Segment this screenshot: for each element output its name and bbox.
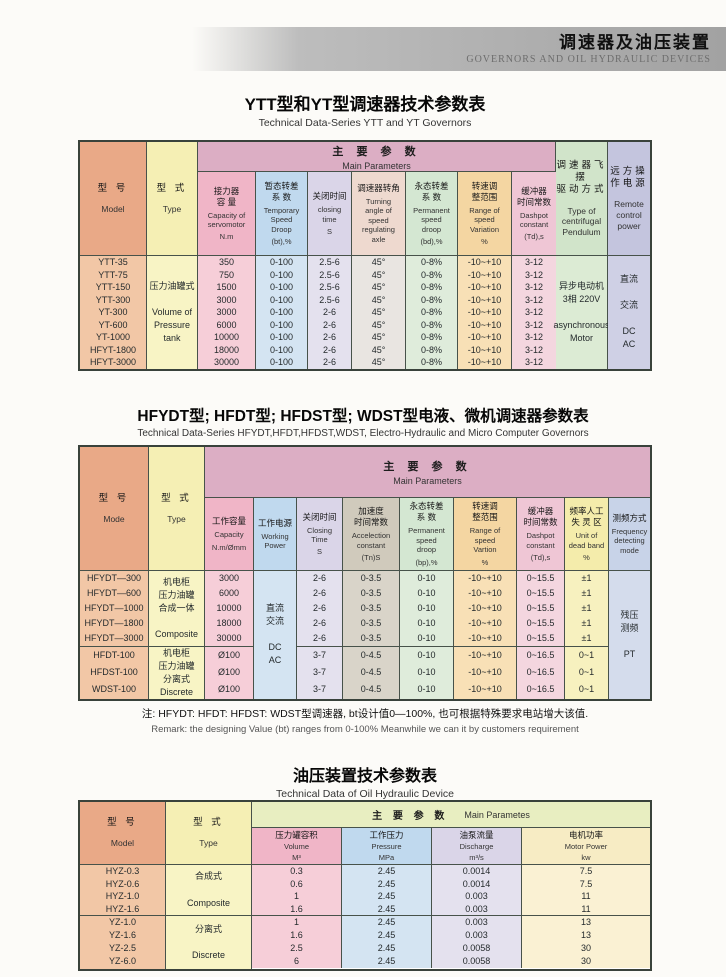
table-cell: 3-7 <box>297 664 342 681</box>
table3-title: 油压装置技术参数表 Technical Data of Oil Hydrauli… <box>78 762 652 800</box>
header-en: Volume <box>284 842 309 851</box>
table-cell: 0-100 <box>256 344 307 357</box>
remark-cn: 注: HFYDT: HFDT: HFDST: WDST型调速器, bt设计值0—… <box>58 706 672 721</box>
table-cell: HFYT-1800 <box>80 344 146 357</box>
table-cell: YTT-75 <box>80 269 146 282</box>
t3-col-pressure: 工作压力 Pressure MPa 2.452.452.452.45 2.452… <box>342 828 432 968</box>
header-en: Turning angle of speed regulating axle <box>362 197 395 244</box>
t2-col-working-power: 工作电源 Working Power 直流 交流 DC AC <box>254 498 297 699</box>
table-cell: HFDT-100 <box>80 647 148 664</box>
t2-capacity-values-g1: 30006000100001800030000 <box>205 571 253 646</box>
header-unit: kw <box>581 853 590 862</box>
table-cell: 0-8% <box>406 294 457 307</box>
table-cell: 30000 <box>198 356 255 369</box>
t3-subcolumns: 压力罐容积 Volume M³ 0.30.611.6 11.62.56 工作压力… <box>252 828 650 968</box>
header-cn: 测频方式 <box>612 513 646 524</box>
table3-oil-hydraulic-device: 型 号 Model HYZ-0.3HYZ-0.6HYZ-1.0HYZ-1.6 Y… <box>78 800 652 971</box>
catalog-page: 调速器及油压装置 GOVERNORS AND OIL HYDRAULIC DEV… <box>0 0 726 977</box>
t2-tn-values-g2: 0-4.50-4.50-4.5 <box>343 646 399 698</box>
table-cell: 3-12 <box>512 319 556 332</box>
table-cell: 2-6 <box>297 571 342 586</box>
table-cell: 0~1 <box>565 664 608 681</box>
table-cell: 45° <box>352 344 405 357</box>
t3-motor-values-g2: 13133030 <box>522 915 650 968</box>
t3-pressure-values-g1: 2.452.452.452.45 <box>342 865 431 915</box>
table-cell: 0-10 <box>400 664 453 681</box>
table-cell: Ø100 <box>205 681 253 698</box>
table-cell: 0~16.5 <box>517 681 564 698</box>
t3-volume-values-g2: 11.62.56 <box>252 915 341 968</box>
table-cell: 2-6 <box>308 344 351 357</box>
t1-col-temporary-droop: 暂态转差 系 数 Temporary Speed Droop (bt),% 0-… <box>256 172 308 369</box>
t3-discharge-values-g2: 0.0030.0030.00580.0058 <box>432 915 521 968</box>
t2-col-permanent-droop: 永态转差 系 数 Permanent speed droop (bp),% 0-… <box>400 498 454 699</box>
table-cell: 45° <box>352 331 405 344</box>
header-cn: 接力器 容 量 <box>214 186 240 208</box>
t3-motor-header: 电机功率 Motor Power kw <box>522 828 650 865</box>
table-cell: ±1 <box>565 616 608 631</box>
header-en: Accelection constant <box>352 531 390 550</box>
table-cell: 13 <box>522 916 650 929</box>
header-en: Type <box>163 204 181 215</box>
table-cell: 0-10 <box>400 647 453 664</box>
table-cell: HFYDT—600 <box>80 586 148 601</box>
table-cell: 0-10 <box>400 616 453 631</box>
table-cell: 1.6 <box>252 929 341 942</box>
table-cell: HFYT-3000 <box>80 356 146 369</box>
t1-main-parameters-group: 主 要 参 数 Main Parameters 接力器 容 量 Capacity… <box>198 142 556 369</box>
table-cell: -10~+10 <box>454 616 516 631</box>
header-en: Discharge <box>460 842 494 851</box>
table-cell: 2.5-6 <box>308 281 351 294</box>
table-cell: 0-8% <box>406 269 457 282</box>
t1-col-turning-angle: 调速器转角 Turning angle of speed regulating … <box>352 172 406 369</box>
table-cell: 0-10 <box>400 586 453 601</box>
t3-col-type: 型 式 Type 合成式 Composite 分离式 Discrete <box>166 802 252 969</box>
table-cell: 0-3.5 <box>343 601 399 616</box>
table1-title-en: Technical Data-Series YTT and YT Governo… <box>78 117 652 129</box>
t3-model-values-g1: HYZ-0.3HYZ-0.6HYZ-1.0HYZ-1.6 <box>80 865 165 915</box>
table-cell: 0.6 <box>252 878 341 891</box>
table-cell: 0-8% <box>406 319 457 332</box>
table-cell: -10~+10 <box>458 344 511 357</box>
table1-governors-ytt-yt: 型 号 Model YTT-35YTT-75YTT-150YTT-300YT-3… <box>78 140 652 371</box>
header-cn: 工作电源 <box>258 518 292 529</box>
table-cell: HYZ-1.0 <box>80 890 165 903</box>
table-cell: 0-4.5 <box>343 647 399 664</box>
header-cn: 型 号 <box>99 493 130 505</box>
table-cell: 750 <box>198 269 255 282</box>
t3-volume-values-g1: 0.30.611.6 <box>252 865 341 915</box>
t3-model-values-g2: YZ-1.0YZ-1.6YZ-2.5YZ-6.0 <box>80 915 165 968</box>
header-en: Type <box>167 514 185 525</box>
table-cell: 0-100 <box>256 356 307 369</box>
header-en: Dashpot constant <box>520 211 548 230</box>
table-cell: 2-6 <box>308 306 351 319</box>
header-en: Capacity <box>214 530 243 539</box>
table-cell: -10~+10 <box>454 571 516 586</box>
table-cell: 3-12 <box>512 306 556 319</box>
table-cell: 0.0014 <box>432 865 521 878</box>
t2-deadband-header: 频率人工 失 灵 区 Unit of dead band % <box>565 498 608 571</box>
table-cell: 0-8% <box>406 256 457 269</box>
table-cell: 10000 <box>205 601 253 616</box>
t2-main-parameters-group: 主 要 参 数 Main Parameters 工作容量 Capacity N.… <box>205 447 650 699</box>
table-cell: 0-100 <box>256 269 307 282</box>
table-cell: 0.003 <box>432 916 521 929</box>
header-unit: MPa <box>379 853 394 862</box>
t1-col-speed-range: 转速调 整范围 Range of speed Variation % -10~+… <box>458 172 512 369</box>
t3-main-parameters-band: 主 要 参 数 Main Parametes <box>252 802 650 828</box>
header-cn: 型 号 <box>98 183 129 195</box>
table2-title-en: Technical Data-Series HFYDT,HFDT,HFDST,W… <box>38 428 688 439</box>
table-cell: -10~+10 <box>458 319 511 332</box>
table-cell: 18000 <box>205 616 253 631</box>
table-cell: Ø100 <box>205 647 253 664</box>
table-cell: YZ-2.5 <box>80 942 165 955</box>
header-en: Permanent speed droop <box>408 526 445 554</box>
header-en: Mode <box>103 514 124 525</box>
table-cell: -10~+10 <box>458 256 511 269</box>
header-en: Type of centrifugal Pendulum <box>562 206 601 238</box>
table-cell: YT-300 <box>80 306 146 319</box>
t1-capacity-header: 接力器 容 量 Capacity of servomotor N.m <box>198 172 255 256</box>
table-cell: 1 <box>252 890 341 903</box>
header-cn: 远方操 作电源 <box>610 166 648 191</box>
table-cell: 3-12 <box>512 344 556 357</box>
t2-model-values-g1: HFYDT—300HFYDT—600HFYDT—1000HFYDT—1800HF… <box>80 571 148 646</box>
table-cell: 3-12 <box>512 356 556 369</box>
t3-type-discrete-cell: 分离式 Discrete <box>166 915 251 969</box>
t1-remote-header: 远方操 作电源 Remote control power <box>608 142 650 256</box>
t2-td-values-g2: 0~16.50~16.50~16.5 <box>517 646 564 698</box>
table-cell: 18000 <box>198 344 255 357</box>
table-cell: 45° <box>352 269 405 282</box>
table-cell: 7.5 <box>522 878 650 891</box>
t2-deadband-values-g2: 0~10~10~1 <box>565 646 608 698</box>
t1-pendulum-merged-cell: 异步电动机 3相 220V asynchronous Motor <box>556 256 607 369</box>
table-cell: HYZ-1.6 <box>80 903 165 916</box>
table-cell: 3000 <box>198 294 255 307</box>
t3-pressure-values-g2: 2.452.452.452.45 <box>342 915 431 968</box>
t1-capacity-values: 3507501500300030006000100001800030000 <box>198 256 255 369</box>
table-cell: 2.45 <box>342 929 431 942</box>
header-cn: 转速调 整范围 <box>472 181 498 203</box>
header-cn: 工作压力 <box>369 830 403 841</box>
header-unit: S <box>327 227 332 236</box>
table-cell: 3000 <box>205 571 253 586</box>
table-cell: -10~+10 <box>454 664 516 681</box>
t2-col-type: 型 式 Type 机电柜 压力油罐 合成一体 Composite 机电柜 压力油… <box>149 447 205 699</box>
table-cell: 2.45 <box>342 903 431 916</box>
header-unit: N.m/Ømm <box>212 543 246 552</box>
table-cell: 0-100 <box>256 256 307 269</box>
table-cell: 0-8% <box>406 331 457 344</box>
t2-closing-values-g2: 3-73-73-7 <box>297 646 342 698</box>
header-unit: (bt),% <box>271 237 291 246</box>
t1-angle-values: 45°45°45°45°45°45°45°45°45° <box>352 256 405 369</box>
t3-col-volume: 压力罐容积 Volume M³ 0.30.611.6 11.62.56 <box>252 828 342 968</box>
table-cell: HFYDT—3000 <box>80 631 148 646</box>
table-cell: 0-100 <box>256 294 307 307</box>
table-cell: 0-8% <box>406 281 457 294</box>
t1-td-header: 缓冲器 时间常数 Dashpot constant (Td),s <box>512 172 556 256</box>
header-unit: (bp),% <box>415 558 437 567</box>
header-cn: 永态转差 系 数 <box>409 501 443 523</box>
table-cell: 2.45 <box>342 890 431 903</box>
header-unit: N.m <box>220 232 234 241</box>
table-cell: YZ-1.6 <box>80 929 165 942</box>
table-cell: 2.5 <box>252 942 341 955</box>
header-cn: 缓冲器 时间常数 <box>523 506 557 528</box>
table-cell: 45° <box>352 319 405 332</box>
t3-volume-header: 压力罐容积 Volume M³ <box>252 828 341 865</box>
header-en: Range of speed Vartion <box>470 526 500 554</box>
table-cell: HFYDT—300 <box>80 571 148 586</box>
table-cell: -10~+10 <box>458 356 511 369</box>
header-cn: 压力罐容积 <box>275 830 318 841</box>
header-en: Dashpot constant <box>526 531 554 550</box>
header-en: Model <box>101 204 124 215</box>
table-cell: 30000 <box>205 631 253 646</box>
t2-type-discrete-cell: 机电柜 压力油罐 分离式 Discrete <box>149 646 204 699</box>
table-cell: 1.6 <box>252 903 341 916</box>
table-cell: -10~+10 <box>454 586 516 601</box>
band-cn: 主 要 参 数 <box>383 458 471 474</box>
t2-model-header: 型 号 Mode <box>80 447 148 571</box>
t1-col-model: 型 号 Model YTT-35YTT-75YTT-150YTT-300YT-3… <box>80 142 147 369</box>
t1-col-closing-time: 关闭时间 closing time S 2.5-62.5-62.5-62.5-6… <box>308 172 352 369</box>
header-en: Temporary Speed Droop <box>264 206 299 234</box>
table-cell: YTT-300 <box>80 294 146 307</box>
table-cell: 350 <box>198 256 255 269</box>
table-cell: 0-10 <box>400 601 453 616</box>
t1-col-dashpot: 缓冲器 时间常数 Dashpot constant (Td),s 3-123-1… <box>512 172 556 369</box>
table-cell: 0~1 <box>565 647 608 664</box>
table-cell: -10~+10 <box>458 294 511 307</box>
header-unit: S <box>317 547 322 556</box>
table-cell: 30 <box>522 955 650 968</box>
table-cell: 0.3 <box>252 865 341 878</box>
remark-en: Remark: the designing Value (bt) ranges … <box>58 724 672 735</box>
t2-capacity-values-g2: Ø100Ø100Ø100 <box>205 646 253 698</box>
t2-mode-header: 测频方式 Frequency detecting mode <box>609 498 650 571</box>
table-cell: ±1 <box>565 631 608 646</box>
t2-main-parameters-band: 主 要 参 数 Main Parameters <box>205 447 650 498</box>
table-cell: 2.45 <box>342 878 431 891</box>
t2-type-header: 型 式 Type <box>149 447 204 571</box>
table-cell: 0~15.5 <box>517 631 564 646</box>
band-en: Main Parametes <box>464 810 530 820</box>
t2-closing-header: 关闭时间 Closing Time S <box>297 498 342 571</box>
header-cn: 加速度 时间常数 <box>354 506 388 528</box>
header-en: Remote control power <box>614 199 644 231</box>
header-unit: M³ <box>292 853 301 862</box>
table-cell: 0.0058 <box>432 942 521 955</box>
t3-col-discharge: 油泵流量 Discharge m³/s 0.00140.00140.0030.0… <box>432 828 522 968</box>
header-unit: % <box>481 237 488 246</box>
table-cell: 3000 <box>198 306 255 319</box>
t2-bp-values-g1: 0-100-100-100-100-10 <box>400 571 453 646</box>
t2-power-header: 工作电源 Working Power <box>254 498 296 571</box>
header-cn: 永态转差 系 数 <box>414 181 448 203</box>
header-unit: m³/s <box>469 853 484 862</box>
t2-col-model: 型 号 Mode HFYDT—300HFYDT—600HFYDT—1000HFY… <box>80 447 149 699</box>
header-en: Motor Power <box>565 842 608 851</box>
table-cell: 3-12 <box>512 269 556 282</box>
header-en: Closing Time <box>307 526 332 545</box>
table-cell: 2.45 <box>342 916 431 929</box>
table-cell: 2-6 <box>297 616 342 631</box>
t1-col-remote-power: 远方操 作电源 Remote control power 直流 交流 DC AC <box>608 142 650 369</box>
header-en: closing time <box>318 205 341 224</box>
t2-mode-merged-cell: 残压 测频 PT <box>609 571 650 699</box>
table-cell: 2-6 <box>297 586 342 601</box>
header-en: Permanent speed droop <box>413 206 450 234</box>
t1-bd-values: 0-8%0-8%0-8%0-8%0-8%0-8%0-8%0-8%0-8% <box>406 256 457 369</box>
table-cell: 2-6 <box>297 631 342 646</box>
header-unit: (Tn)S <box>362 553 381 562</box>
t2-bp-values-g2: 0-100-100-10 <box>400 646 453 698</box>
header-unit: % <box>482 558 489 567</box>
table-cell: 6 <box>252 955 341 968</box>
t1-col-capacity: 接力器 容 量 Capacity of servomotor N.m 35075… <box>198 172 256 369</box>
table-cell: 0.0014 <box>432 878 521 891</box>
table2-title: HFYDT型; HFDT型; HFDST型; WDST型电液、微机调速器参数表 … <box>38 404 688 439</box>
table-cell: Ø100 <box>205 664 253 681</box>
table-cell: 30 <box>522 942 650 955</box>
t3-discharge-header: 油泵流量 Discharge m³/s <box>432 828 521 865</box>
t2-power-merged-cell: 直流 交流 DC AC <box>254 571 296 699</box>
table-cell: YT-600 <box>80 319 146 332</box>
header-cn: 调速器飞摆 驱动方式 <box>556 160 607 197</box>
table-cell: 2.45 <box>342 942 431 955</box>
t2-tn-header: 加速度 时间常数 Accelection constant (Tn)S <box>343 498 399 571</box>
t2-col-detecting-mode: 测频方式 Frequency detecting mode 残压 测频 PT <box>609 498 650 699</box>
t2-subcolumns: 工作容量 Capacity N.m/Ømm 300060001000018000… <box>205 498 650 699</box>
header-cn: 型 式 <box>193 817 224 829</box>
table-cell: HYZ-0.6 <box>80 878 165 891</box>
table1-title-cn: YTT型和YT型调速器技术参数表 <box>78 90 652 115</box>
t3-discharge-values-g1: 0.00140.00140.0030.003 <box>432 865 521 915</box>
band-en: Main Parameters <box>393 476 462 486</box>
table-cell: 0-100 <box>256 281 307 294</box>
table-cell: 0.0058 <box>432 955 521 968</box>
table-cell: ±1 <box>565 571 608 586</box>
page-header-banner: 调速器及油压装置 GOVERNORS AND OIL HYDRAULIC DEV… <box>192 27 726 71</box>
table-cell: 2-6 <box>308 319 351 332</box>
t1-td-values: 3-123-123-123-123-123-123-123-123-12 <box>512 256 556 369</box>
header-cn: 型 号 <box>107 817 138 829</box>
table-cell: 0-10 <box>400 571 453 586</box>
table-cell: 0-10 <box>400 681 453 698</box>
t1-range-header: 转速调 整范围 Range of speed Variation % <box>458 172 511 256</box>
header-en: Working Power <box>261 532 288 551</box>
header-cn: 暂态转差 系 数 <box>264 181 298 203</box>
table-cell: ±1 <box>565 586 608 601</box>
table-cell: 0-8% <box>406 356 457 369</box>
header-en: Pressure <box>371 842 401 851</box>
t2-col-capacity: 工作容量 Capacity N.m/Ømm 300060001000018000… <box>205 498 254 699</box>
page-title-cn: 调速器及油压装置 <box>559 33 711 53</box>
header-unit: (Td),s <box>531 553 551 562</box>
header-unit: (bd),% <box>420 237 442 246</box>
t3-motor-values-g1: 7.57.51111 <box>522 865 650 915</box>
t2-col-acceleration-constant: 加速度 时间常数 Accelection constant (Tn)S 0-3.… <box>343 498 400 699</box>
header-cn: 工作容量 <box>212 516 246 527</box>
t1-bt-header: 暂态转差 系 数 Temporary Speed Droop (bt),% <box>256 172 307 256</box>
header-cn: 型 式 <box>157 183 188 195</box>
table-cell: 45° <box>352 256 405 269</box>
table-cell: 7.5 <box>522 865 650 878</box>
table-cell: 3-12 <box>512 294 556 307</box>
t1-model-values: YTT-35YTT-75YTT-150YTT-300YT-300YT-600YT… <box>80 256 146 369</box>
header-cn: 调速器转角 <box>357 183 400 194</box>
t1-col-permanent-droop: 永态转差 系 数 Permanent speed droop (bd),% 0-… <box>406 172 458 369</box>
table-cell: 11 <box>522 903 650 916</box>
table-cell: 3-12 <box>512 281 556 294</box>
table-cell: 3-7 <box>297 647 342 664</box>
header-cn: 关闭时间 <box>302 512 336 523</box>
table-cell: YTT-35 <box>80 256 146 269</box>
table-cell: 0-100 <box>256 306 307 319</box>
table-cell: 45° <box>352 294 405 307</box>
table-cell: 0-8% <box>406 306 457 319</box>
header-en: Type <box>199 838 217 849</box>
t3-main-parameters-group: 主 要 参 数 Main Parametes 压力罐容积 Volume M³ 0… <box>252 802 650 969</box>
t2-col-dead-band: 频率人工 失 灵 区 Unit of dead band % ±1±1±1±1±… <box>565 498 609 699</box>
header-cn: 转速调 整范围 <box>472 501 498 523</box>
table-cell: 2-6 <box>308 331 351 344</box>
t3-type-header: 型 式 Type <box>166 802 251 865</box>
table2-remark: 注: HFYDT: HFDT: HFDST: WDST型调速器, bt设计值0—… <box>58 706 672 735</box>
header-en: Model <box>111 838 134 849</box>
t2-capacity-header: 工作容量 Capacity N.m/Ømm <box>205 498 253 571</box>
table-cell: -10~+10 <box>454 647 516 664</box>
header-en: Frequency detecting mode <box>612 527 647 555</box>
t3-col-model: 型 号 Model HYZ-0.3HYZ-0.6HYZ-1.0HYZ-1.6 Y… <box>80 802 166 969</box>
band-cn: 主 要 参 数 <box>372 807 448 822</box>
table-cell: WDST-100 <box>80 681 148 698</box>
table-cell: 11 <box>522 890 650 903</box>
t2-range-header: 转速调 整范围 Range of speed Vartion % <box>454 498 516 571</box>
t1-closing-values: 2.5-62.5-62.5-62.5-62-62-62-62-62-6 <box>308 256 351 369</box>
t2-closing-values-g1: 2-62-62-62-62-6 <box>297 571 342 646</box>
t2-col-dashpot: 缓冲器 时间常数 Dashpot constant (Td),s 0~15.50… <box>517 498 565 699</box>
table-cell: 0.003 <box>432 929 521 942</box>
table-cell: 45° <box>352 306 405 319</box>
table3-title-en: Technical Data of Oil Hydraulic Device <box>78 788 652 800</box>
t1-col-pendulum: 调速器飞摆 驱动方式 Type of centrifugal Pendulum … <box>556 142 608 369</box>
table-cell: 1 <box>252 916 341 929</box>
table-cell: 0-3.5 <box>343 616 399 631</box>
table-cell: 2.5-6 <box>308 269 351 282</box>
table-cell: HFDST-100 <box>80 664 148 681</box>
table-cell: HFYDT—1000 <box>80 601 148 616</box>
table-cell: 3-12 <box>512 256 556 269</box>
t2-deadband-values-g1: ±1±1±1±1±1 <box>565 571 608 646</box>
t1-closing-header: 关闭时间 closing time S <box>308 172 351 256</box>
t1-col-type: 型 式 Type 压力油罐式 Volume of Pressure tank <box>147 142 198 369</box>
table-cell: YT-1000 <box>80 331 146 344</box>
table-cell: 2-6 <box>308 356 351 369</box>
t2-model-values-g2: HFDT-100HFDST-100WDST-100 <box>80 646 148 698</box>
table-cell: -10~+10 <box>458 281 511 294</box>
header-en: Unit of dead band <box>569 531 604 550</box>
t2-col-closing-time: 关闭时间 Closing Time S 2-62-62-62-62-6 3-73… <box>297 498 343 699</box>
table2-governors-electro-hydraulic: 型 号 Mode HFYDT—300HFYDT—600HFYDT—1000HFY… <box>78 445 652 701</box>
table-cell: ±1 <box>565 601 608 616</box>
